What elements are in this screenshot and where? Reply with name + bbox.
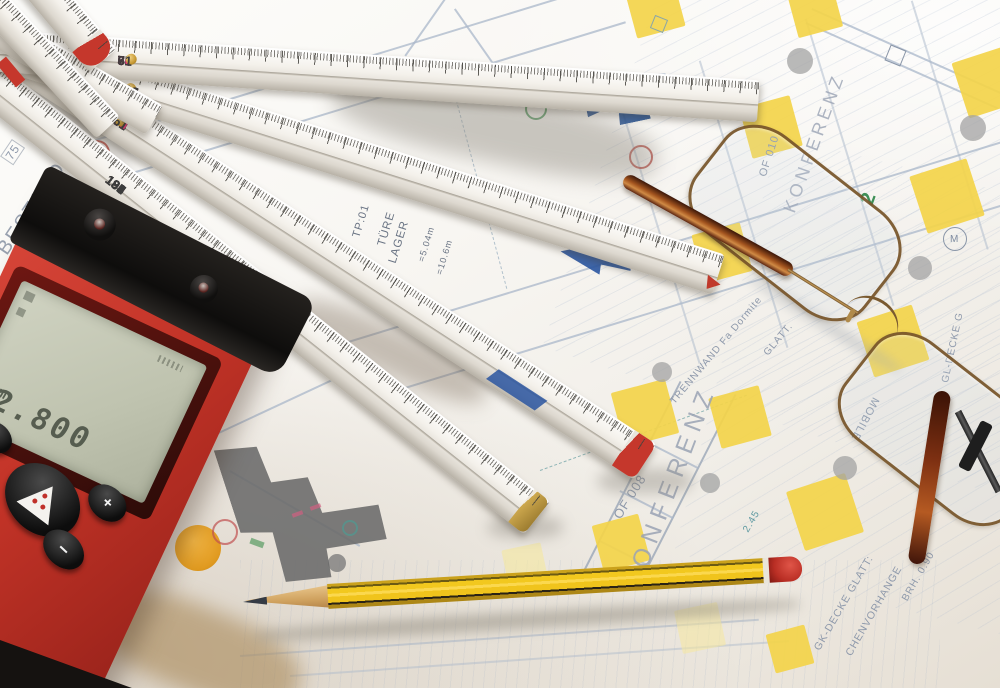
measure-button-triangle (16, 474, 68, 525)
measurement-value: 2.800 (0, 383, 99, 458)
plan-column-dot (833, 456, 857, 480)
lcd-status-icon (23, 291, 36, 303)
label-75: 75 (0, 139, 25, 166)
lens-glass (92, 216, 107, 231)
plan-column-dot (908, 256, 932, 280)
lens-glass (197, 281, 210, 294)
label-m-symbol: M (950, 234, 959, 245)
plan-red-circle-symbol (212, 519, 238, 545)
pencil-end-cap (768, 556, 802, 583)
plan-line (404, 0, 457, 56)
cast-shadow (598, 468, 693, 494)
label-area1: =5.04m (416, 225, 436, 263)
plan-column-dot (328, 554, 346, 572)
construction-plan-photo-scene: BESTAND FLUR 75 KONFERENZ KONFERENZ OF 0… (0, 0, 1000, 688)
lcd-status-icon (16, 307, 27, 318)
receiver-lens (185, 270, 223, 308)
plan-teal-circle-symbol (342, 520, 358, 536)
plus-label: + (98, 493, 117, 513)
plan-green-mark (249, 538, 264, 548)
minus-label: − (53, 538, 75, 561)
laser-lens (78, 203, 121, 246)
pencil-lead-point (243, 597, 267, 606)
plan-column-dot (700, 473, 720, 493)
label-tp01: TP:01 (350, 203, 372, 239)
ruler-number: 81 (117, 53, 132, 69)
label-area2: =10.6m (434, 238, 454, 276)
plan-column-dot (960, 115, 986, 141)
plan-column-dot (787, 48, 813, 74)
lcd-signal-icon (157, 355, 184, 372)
plan-column-dot (652, 362, 672, 382)
